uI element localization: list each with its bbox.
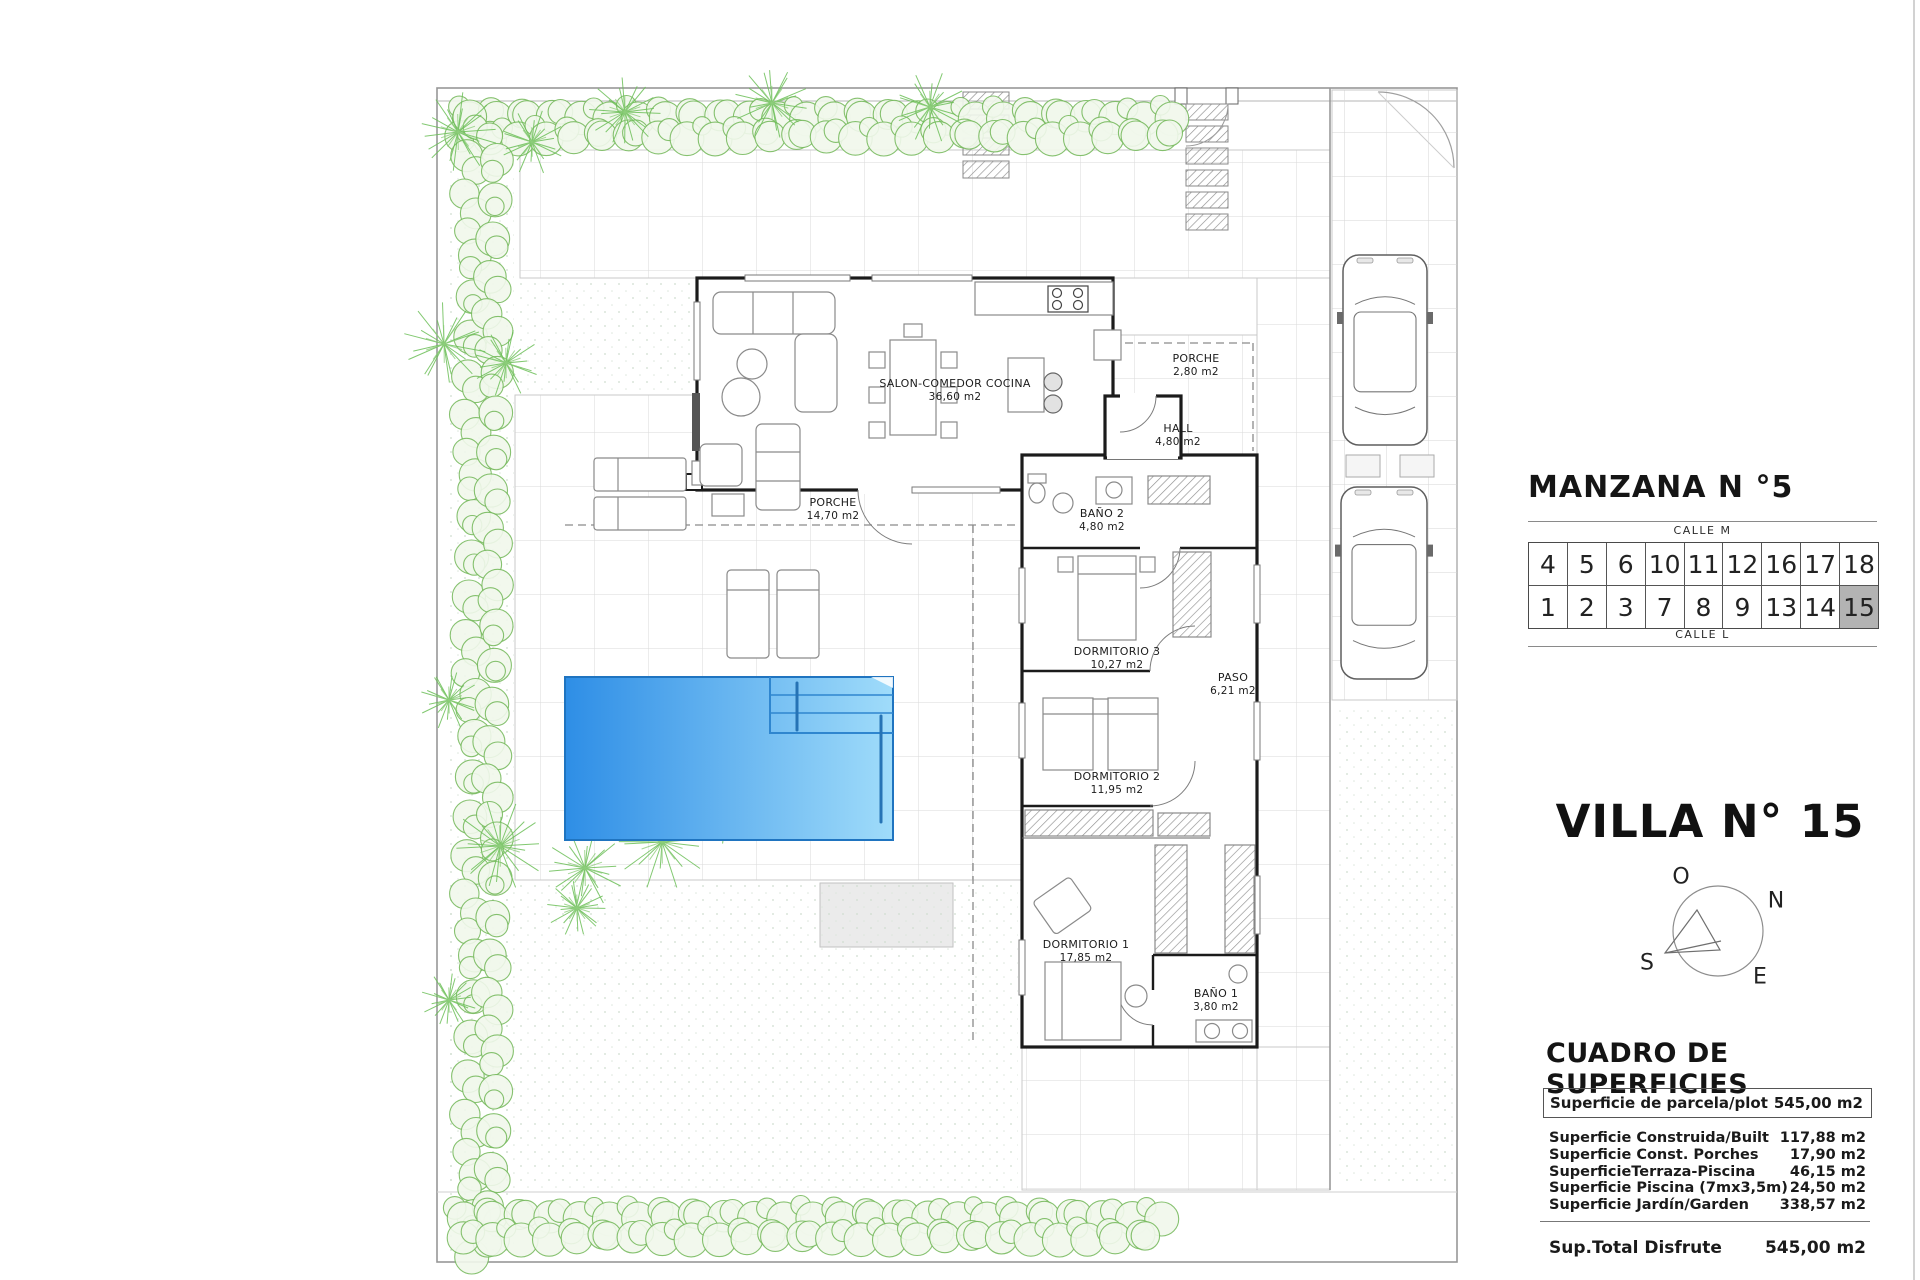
plot-cell-1: 1	[1529, 586, 1567, 628]
surface-row: Superficie Construida/Built117,88 m2	[1549, 1130, 1866, 1147]
surface-value: 338,57 m2	[1780, 1197, 1866, 1214]
compass-east-label: E	[1753, 965, 1767, 990]
street-label-bottom: CALLE L	[1528, 628, 1877, 641]
street-label-top: CALLE M	[1528, 524, 1877, 537]
surface-row: Superficie Piscina (7mx3,5m)24,50 m2	[1549, 1180, 1866, 1197]
double-bed	[1078, 556, 1136, 640]
room-label: SALON-COMEDOR COCINA36,60 m2	[879, 377, 1030, 405]
wardrobe	[1158, 813, 1210, 836]
villa-title: VILLA N° 15	[1540, 795, 1880, 848]
room-label: PORCHE2,80 m2	[1172, 352, 1219, 380]
surface-value: 17,90 m2	[1790, 1147, 1866, 1164]
compass-west-label: O	[1672, 865, 1689, 890]
plot-cell-6: 6	[1606, 543, 1645, 585]
surface-row: SuperficieTerraza-Piscina46,15 m2	[1549, 1164, 1866, 1181]
divider	[1528, 521, 1877, 522]
wardrobe	[1155, 845, 1187, 953]
compass-south-label: S	[1640, 951, 1654, 976]
surface-value: 24,50 m2	[1790, 1180, 1866, 1197]
parcel-surface-row: Superficie de parcela/plot 545,00 m2	[1543, 1088, 1872, 1118]
block-title: MANZANA N °5	[1528, 470, 1880, 505]
room-label: DORMITORIO 211,95 m2	[1074, 770, 1161, 798]
room-label: DORMITORIO 117,85 m2	[1043, 938, 1130, 966]
plot-cell-7: 7	[1645, 586, 1684, 628]
parcel-label: Superficie de parcela/plot	[1550, 1094, 1768, 1112]
plot-cell-9: 9	[1722, 586, 1761, 628]
surface-row: Superficie Const. Porches17,90 m2	[1549, 1147, 1866, 1164]
fridge	[1094, 330, 1121, 360]
plot-cell-3: 3	[1606, 586, 1645, 628]
sheet-edge	[1913, 0, 1915, 1280]
surface-label: SuperficieTerraza-Piscina	[1549, 1164, 1755, 1181]
wardrobe	[1225, 845, 1255, 953]
sun-lounger	[727, 570, 769, 658]
tv-unit	[692, 393, 700, 451]
plot-cell-11: 11	[1684, 543, 1723, 585]
surface-label: Superficie Construida/Built	[1549, 1130, 1769, 1147]
surface-rows: Superficie Construida/Built117,88 m2Supe…	[1549, 1130, 1866, 1214]
bed	[1045, 962, 1121, 1040]
total-surface-row: Sup.Total Disfrute 545,00 m2	[1549, 1238, 1866, 1258]
plot-cell-4: 4	[1529, 543, 1567, 585]
room-label: DORMITORIO 310,27 m2	[1074, 645, 1161, 673]
divider	[1540, 1221, 1870, 1222]
sofa	[713, 292, 835, 334]
sun-lounger	[777, 570, 819, 658]
surface-label: Superficie Jardín/Garden	[1549, 1197, 1749, 1214]
total-value: 545,00 m2	[1765, 1238, 1866, 1258]
compass-rose	[1665, 886, 1763, 976]
plot-cell-12: 12	[1722, 543, 1761, 585]
plot-cell-5: 5	[1567, 543, 1606, 585]
plot-row-calle-l: 123789131415	[1529, 585, 1878, 628]
plot-cell-10: 10	[1645, 543, 1684, 585]
swimming-pool	[565, 677, 893, 840]
surface-label: Superficie Piscina (7mx3,5m)	[1549, 1180, 1788, 1197]
surface-value: 117,88 m2	[1780, 1130, 1866, 1147]
room-label: PASO6,21 m2	[1210, 671, 1256, 699]
lounger	[594, 458, 686, 491]
kitchen-counter	[975, 282, 1113, 315]
plot-cell-2: 2	[1567, 586, 1606, 628]
plot-cell-15: 15	[1839, 586, 1878, 628]
room-label: BAÑO 24,80 m2	[1079, 507, 1125, 535]
closet	[1148, 476, 1210, 504]
single-bed	[1108, 698, 1158, 770]
surface-label: Superficie Const. Porches	[1549, 1147, 1759, 1164]
plot-cell-17: 17	[1800, 543, 1839, 585]
total-label: Sup.Total Disfrute	[1549, 1238, 1722, 1258]
site-plan-sheet: SALON-COMEDOR COCINA36,60 m2PORCHE2,80 m…	[0, 0, 1920, 1280]
room-label: PORCHE14,70 m2	[807, 496, 860, 524]
surface-value: 46,15 m2	[1790, 1164, 1866, 1181]
lounger	[594, 497, 686, 530]
divider	[1528, 646, 1877, 647]
compass-north-label: N	[1768, 889, 1784, 914]
room-label: HALL4,80 m2	[1155, 422, 1201, 450]
plot-number-table: 456101112161718 123789131415	[1528, 542, 1879, 629]
single-bed	[1043, 698, 1093, 770]
parcel-value: 545,00 m2	[1774, 1094, 1863, 1112]
outdoor-sofa	[756, 424, 800, 510]
plot-cell-16: 16	[1761, 543, 1800, 585]
plot-cell-8: 8	[1684, 586, 1723, 628]
surface-row: Superficie Jardín/Garden338,57 m2	[1549, 1197, 1866, 1214]
plot-row-calle-m: 456101112161718	[1529, 543, 1878, 585]
room-label: BAÑO 13,80 m2	[1193, 987, 1239, 1015]
plot-cell-18: 18	[1839, 543, 1878, 585]
wardrobe	[1173, 552, 1211, 637]
wardrobe	[1025, 810, 1153, 836]
plot-cell-13: 13	[1761, 586, 1800, 628]
plot-cell-14: 14	[1800, 586, 1839, 628]
